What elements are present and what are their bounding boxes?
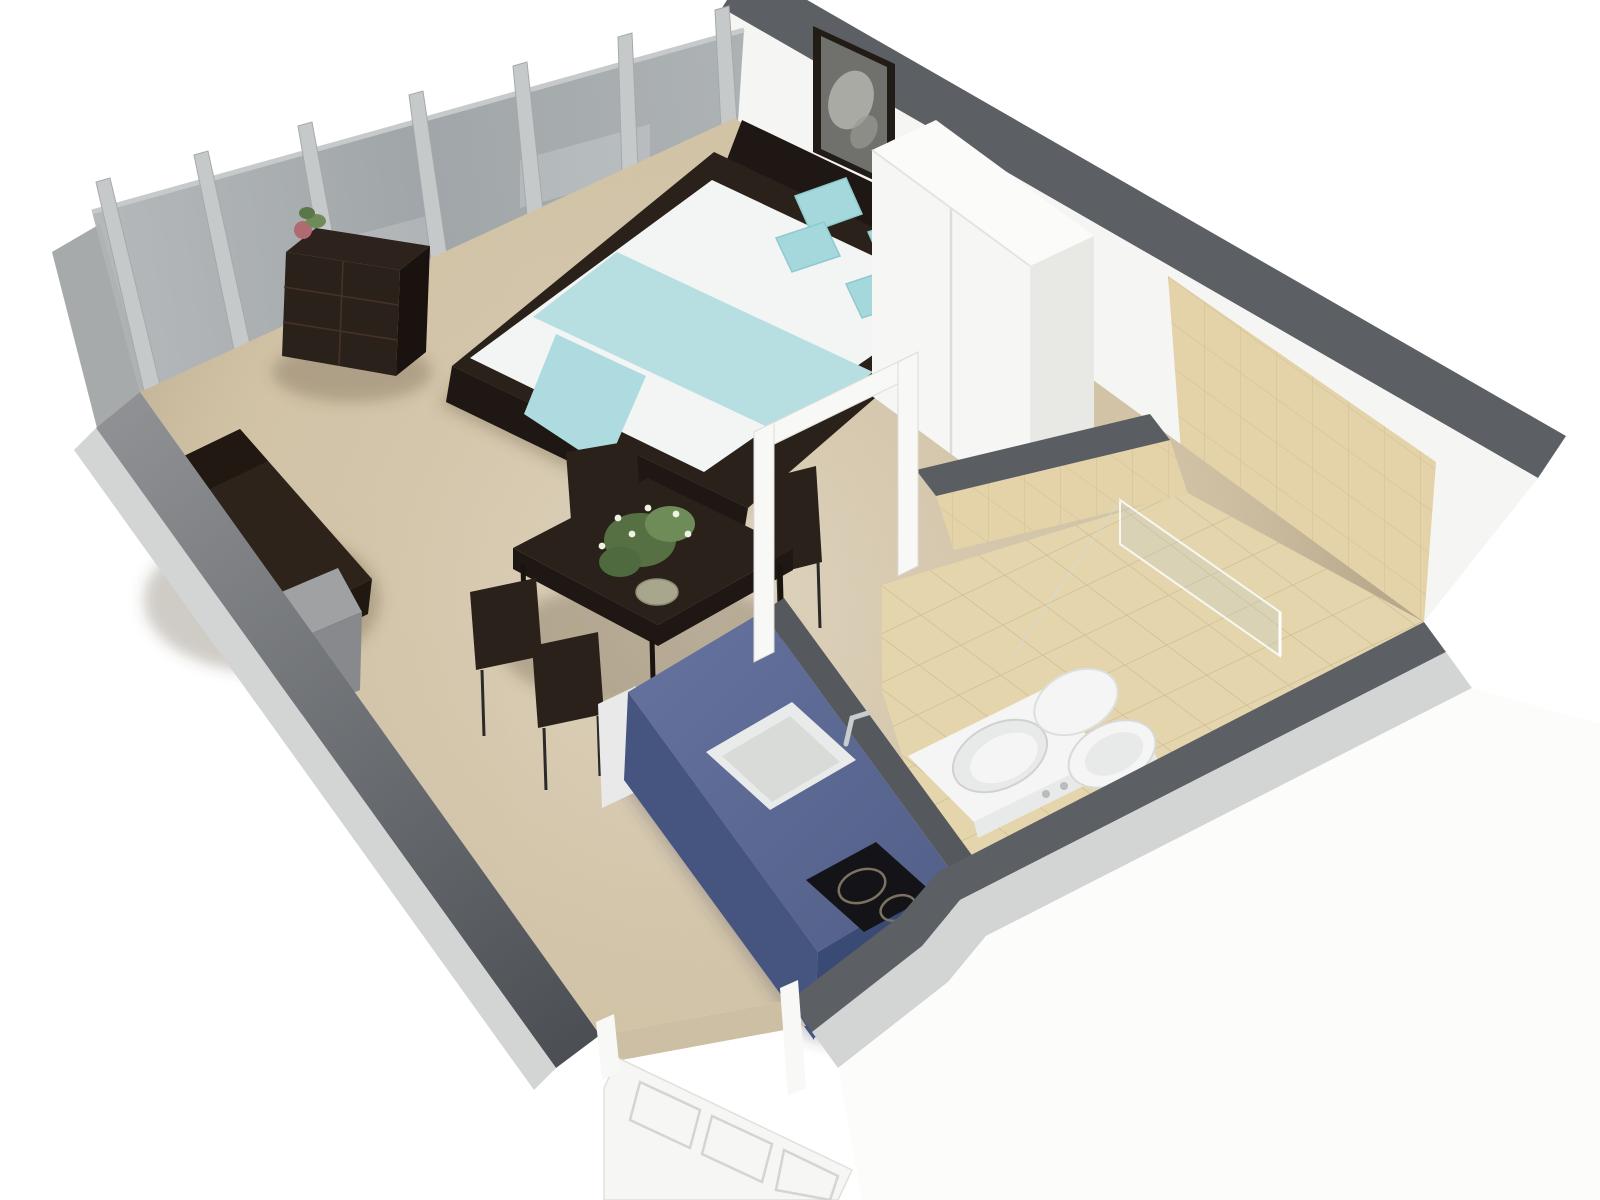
chair-leg	[482, 670, 484, 736]
chair-back	[470, 578, 542, 670]
door-frame-right-post	[898, 352, 918, 576]
vanity-tap	[1060, 782, 1068, 790]
chair-leg	[544, 728, 546, 790]
floor-plan-svg	[0, 0, 1600, 1200]
chair-leg	[818, 562, 820, 628]
plant-foliage	[599, 547, 641, 577]
chair-back	[532, 632, 604, 728]
shelf-leaf	[299, 207, 315, 219]
floor-plan-render	[0, 0, 1600, 1200]
plant-pot	[636, 579, 678, 605]
vanity-tap	[1042, 790, 1050, 798]
door-frame-left-post	[754, 422, 774, 662]
